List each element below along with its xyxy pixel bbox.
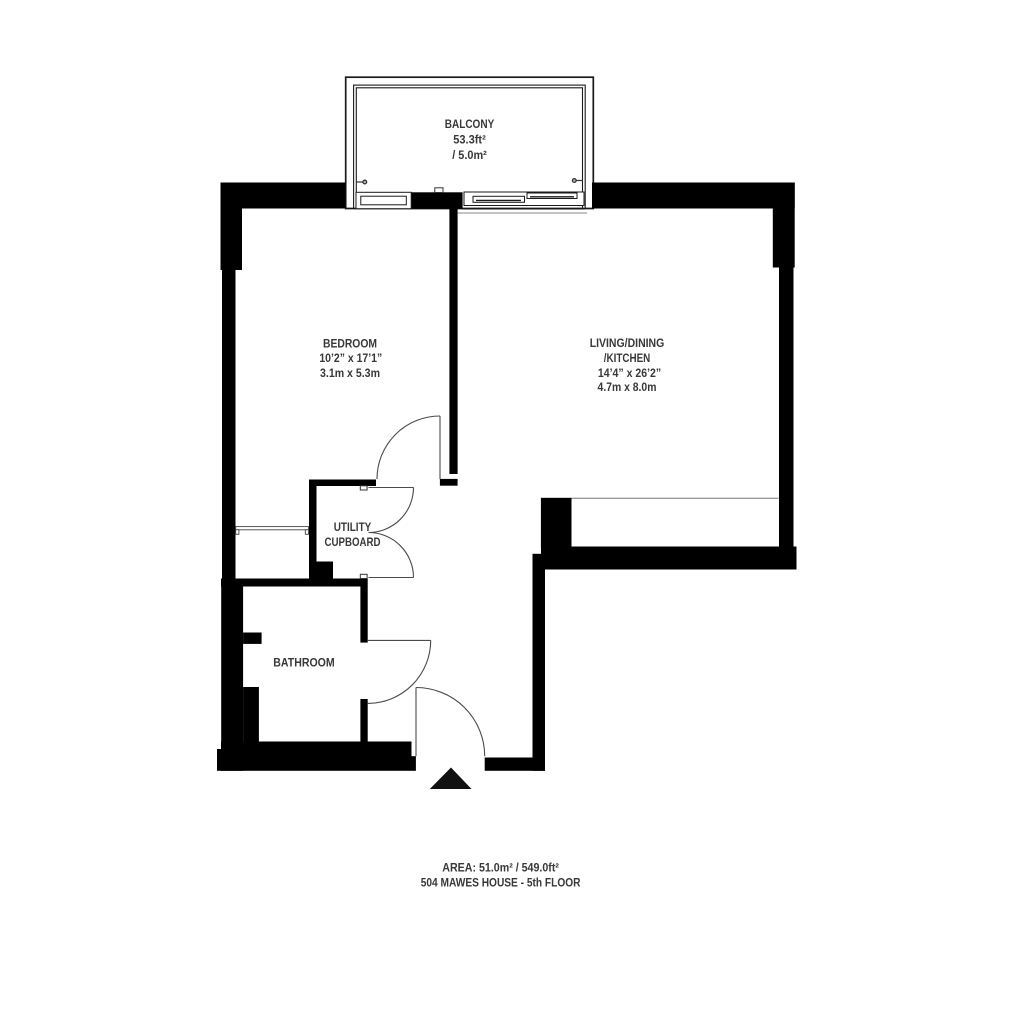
svg-text:3.1m x 5.3m: 3.1m x 5.3m: [320, 368, 380, 381]
svg-text:BALCONY: BALCONY: [445, 118, 495, 131]
svg-text:10’2” x 17’1”: 10’2” x 17’1”: [319, 353, 382, 366]
svg-text:/KITCHEN: /KITCHEN: [604, 352, 651, 365]
svg-text:/ 5.0m²: / 5.0m²: [452, 150, 487, 163]
svg-text:LIVING/DINING: LIVING/DINING: [590, 338, 665, 351]
svg-text:53.3ft²: 53.3ft²: [453, 134, 486, 146]
svg-text:CUPBOARD: CUPBOARD: [324, 536, 380, 549]
svg-text:14’4” x 26’2”: 14’4” x 26’2”: [598, 368, 661, 381]
svg-text:AREA: 51.0m² / 549.0ft²: AREA: 51.0m² / 549.0ft²: [442, 862, 559, 875]
svg-text:504 MAWES HOUSE - 5th FLOOR: 504 MAWES HOUSE - 5th FLOOR: [421, 877, 581, 890]
svg-text:UTILITY: UTILITY: [334, 521, 372, 534]
svg-text:BEDROOM: BEDROOM: [323, 338, 377, 351]
svg-text:4.7m x 8.0m: 4.7m x 8.0m: [598, 382, 657, 395]
svg-text:BATHROOM: BATHROOM: [273, 657, 334, 670]
